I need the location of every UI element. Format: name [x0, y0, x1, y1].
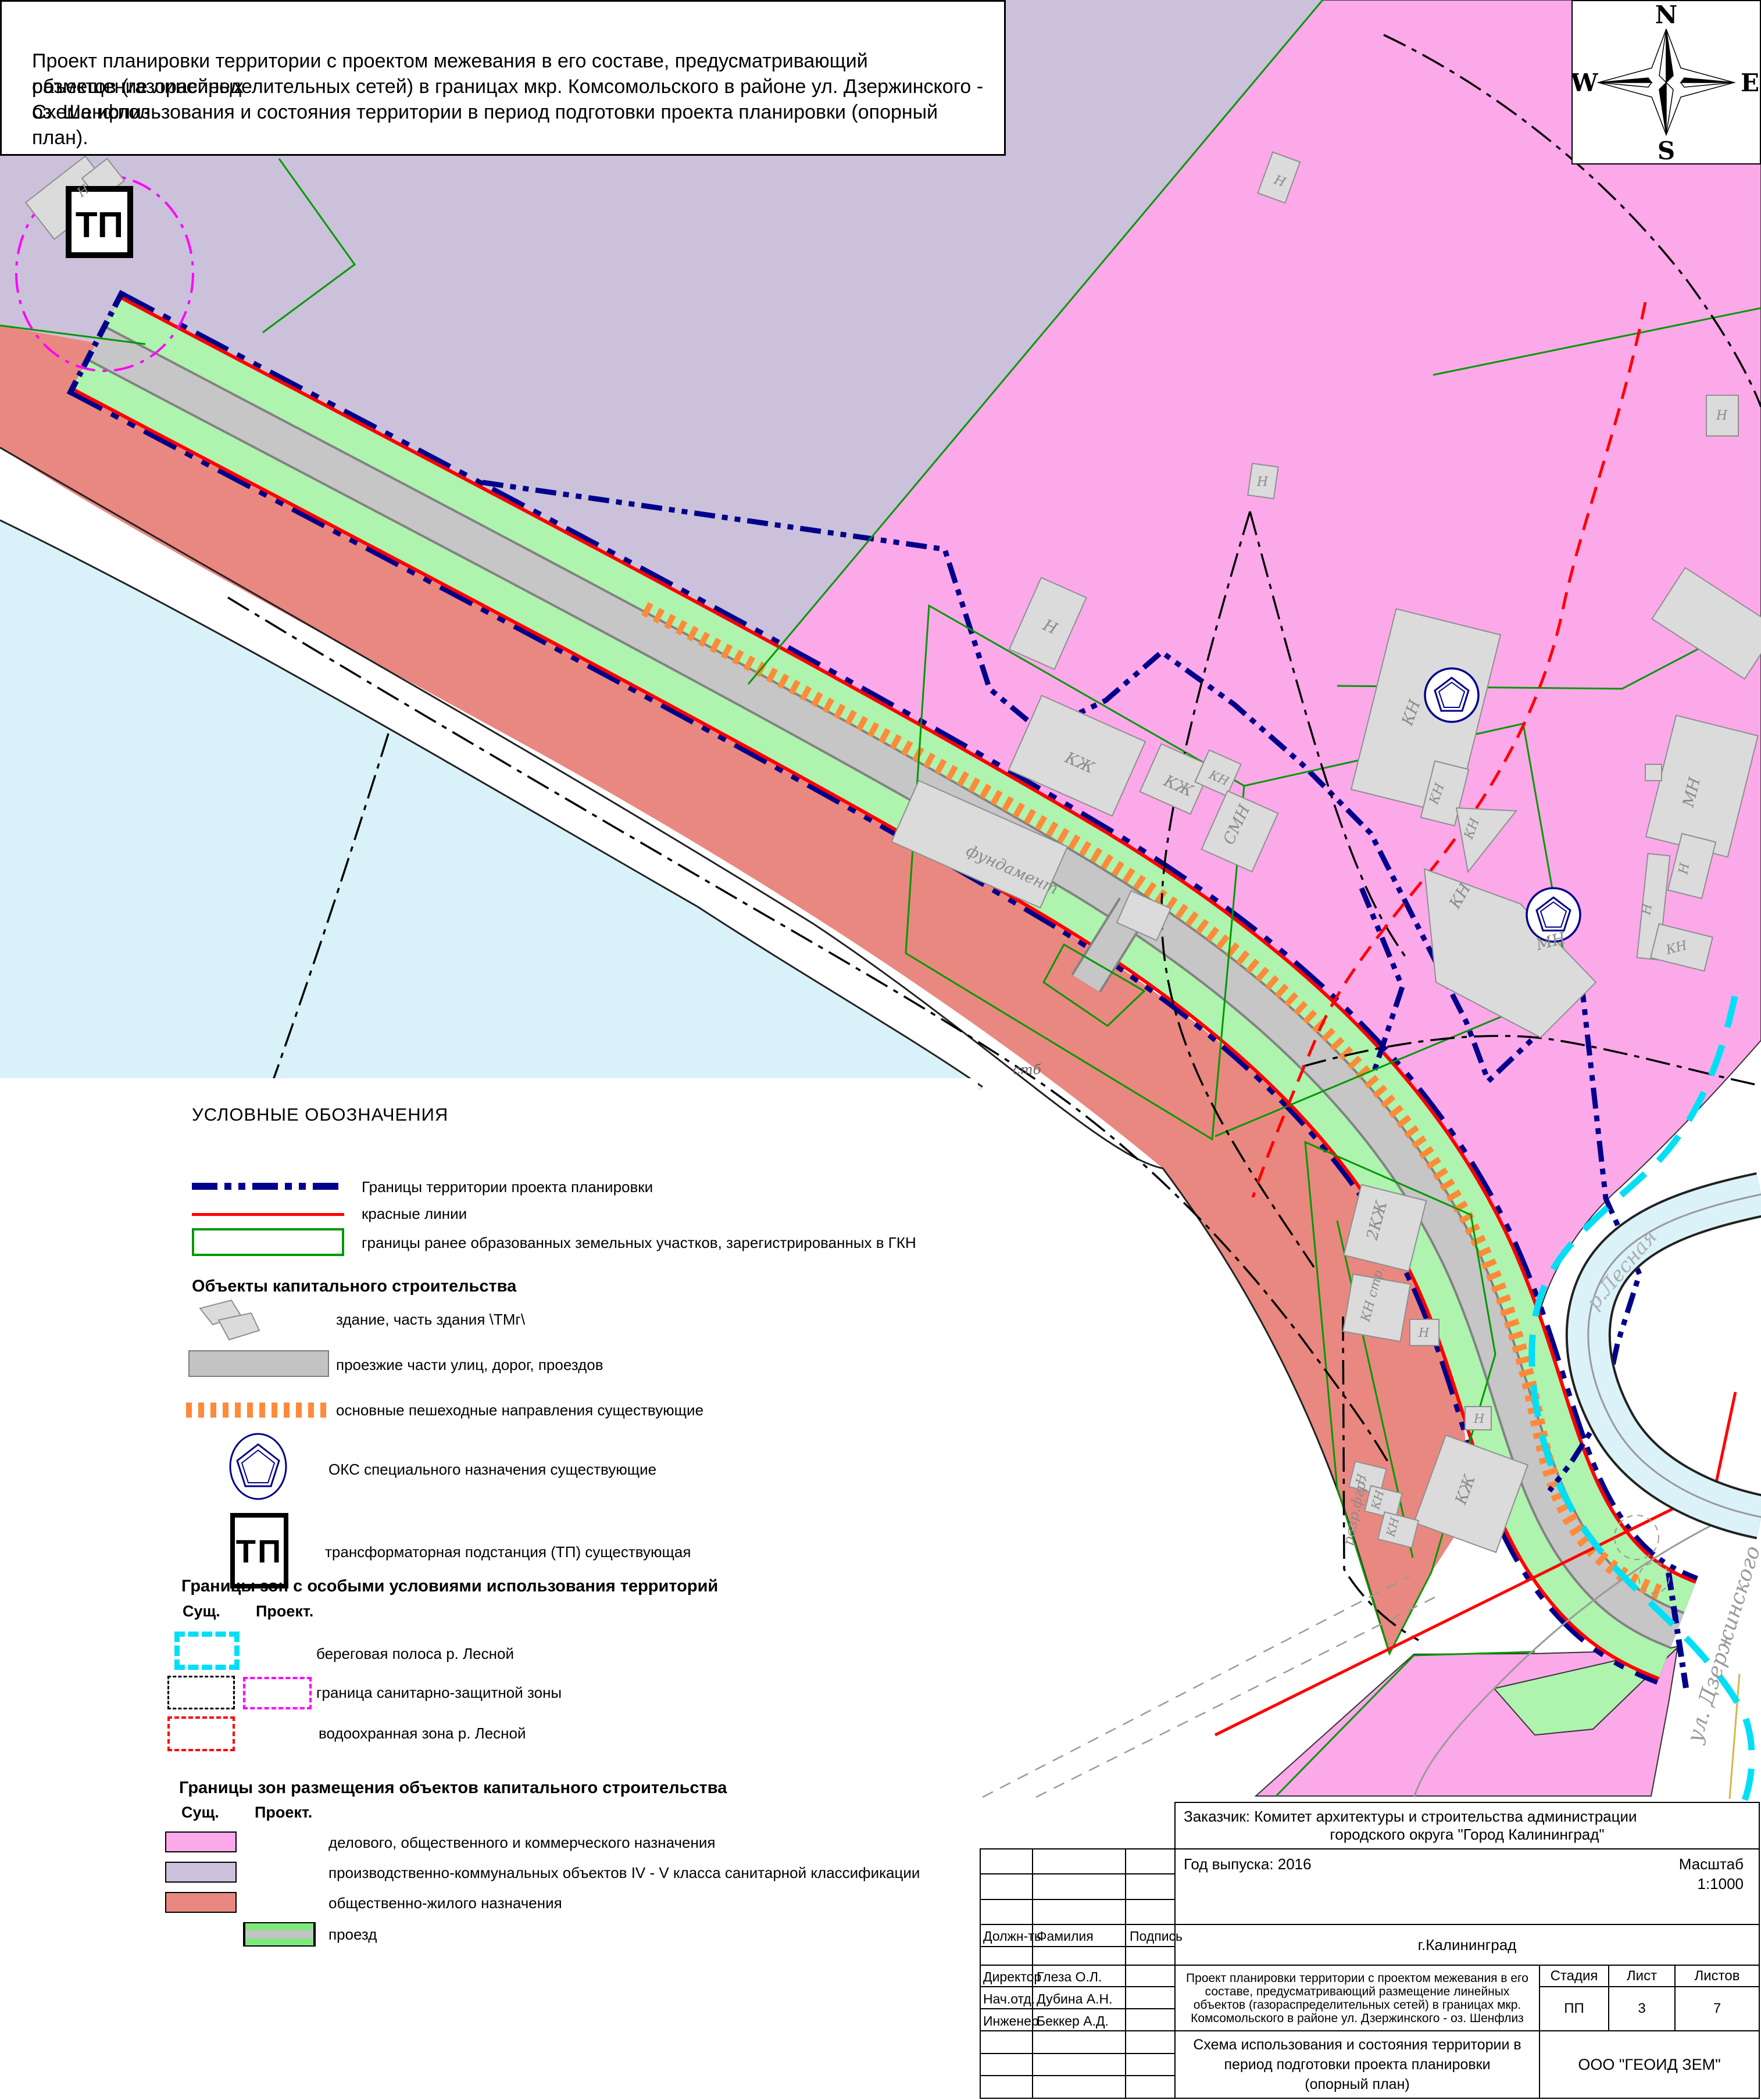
legend-label: проезд — [328, 1926, 377, 1944]
svg-text:Н: Н — [1256, 475, 1269, 489]
compass-box: N S E W — [1571, 0, 1761, 164]
red-line-swatch — [192, 1213, 344, 1216]
person-position: Нач.отд. — [981, 1990, 1037, 2008]
stage-value-cell: ПП — [1539, 1986, 1609, 2031]
col-project: Проект. — [255, 1804, 312, 1822]
legend-label: проезжие части улиц, дорог, проездов — [336, 1356, 603, 1374]
stage-label-cell: Стадия — [1539, 1965, 1609, 1987]
legend-label: основные пешеходные направления существу… — [336, 1401, 703, 1419]
legend-section4-title: Границы зон размещения объектов капиталь… — [179, 1779, 727, 1798]
svg-text:N: N — [1655, 1, 1677, 29]
legend-label: красные линии — [362, 1205, 467, 1223]
city-value: г.Калининград — [1418, 1936, 1517, 1954]
scale-label: Масштаб — [1679, 1855, 1744, 1873]
customer-line1: Заказчик: Комитет архитектуры и строител… — [1184, 1808, 1751, 1826]
stamp-year-cell: Год выпуска: 2016 Масштаб 1:1000 — [1174, 1848, 1760, 1925]
legend-label: граница санитарно-защитной зоны — [316, 1684, 562, 1702]
zone-salmon-swatch — [165, 1892, 237, 1913]
col-surname: Фамилия — [1034, 1927, 1096, 1945]
legend-label: здание, часть здания \ТМг\ — [336, 1311, 525, 1329]
svg-text:S: S — [1658, 137, 1675, 163]
col-existing: Сущ. — [181, 1804, 219, 1822]
svg-text:Н: Н — [1716, 409, 1728, 423]
legend-label: водоохранная зона р. Лесной — [319, 1725, 526, 1743]
boundary-line-swatch — [192, 1183, 344, 1190]
svg-text:W: W — [1573, 69, 1598, 97]
person-name: Глеза О.Л. — [1034, 1968, 1104, 1986]
plan-sheet: ТП фундамент Н КЖ КЖ КН СМН КН КН КН КН … — [0, 0, 1761, 2100]
legend-label: производственно-коммунальных объектов IV… — [328, 1864, 920, 1882]
pedestrian-swatch — [186, 1403, 330, 1418]
legend-label: трансформаторная подстанция (ТП) существ… — [325, 1543, 691, 1561]
stamp-city-cell: г.Калининград — [1174, 1924, 1760, 1966]
sheet-label-cell: Лист — [1608, 1965, 1676, 1987]
legend-section3-title: Границы зон с особыми условиями использо… — [181, 1577, 718, 1596]
sheets-value-cell: 7 — [1674, 1986, 1760, 2031]
sheets-label-cell: Листов — [1674, 1965, 1760, 1987]
legend-label: ОКС специального назначения существующие — [328, 1461, 656, 1479]
tp-symbol-map: ТП — [69, 189, 130, 255]
person-position: Инженер — [981, 2012, 1041, 2030]
svg-text:стб: стб — [1013, 1062, 1042, 1078]
person-name: Беккер А.Д. — [1034, 2012, 1111, 2030]
col-sign: Подпись — [1127, 1927, 1185, 1945]
col-project: Проект. — [256, 1602, 313, 1620]
person-name: Дубина А.Н. — [1034, 1990, 1115, 2008]
tp-icon-label: ТП — [236, 1532, 283, 1570]
col-existing: Сущ. — [183, 1602, 220, 1620]
stamp-company: ООО "ГЕОИД ЗЕМ" — [1539, 2030, 1760, 2099]
sanitary-project-swatch — [243, 1677, 312, 1709]
svg-text:ТП: ТП — [76, 205, 123, 245]
sheet-title-line3: Схема использования и состояния территор… — [32, 99, 987, 151]
building-icon — [195, 1298, 271, 1344]
legend-section2-title: Объекты капитального строительства — [192, 1277, 516, 1296]
water-protect-swatch — [167, 1716, 235, 1751]
scale-value: 1:1000 — [1697, 1875, 1744, 1893]
svg-text:Н: Н — [1418, 1326, 1430, 1340]
oks-icon — [228, 1432, 288, 1501]
legend-label: береговая полоса р. Лесной — [316, 1645, 514, 1663]
sanitary-exist-swatch — [167, 1676, 235, 1709]
stamp-project-title: Проект планировки территории с проектом … — [1174, 1965, 1540, 2031]
compass-rose-icon: N S E W — [1573, 1, 1760, 163]
legend-title: УСЛОВНЫЕ ОБОЗНАЧЕНИЯ — [192, 1104, 448, 1125]
year-value: Год выпуска: 2016 — [1184, 1855, 1312, 1873]
zone-purple-swatch — [165, 1862, 237, 1883]
customer-line2: городского округа "Город Калининград" — [1184, 1826, 1751, 1844]
legend-label: Границы территории проекта планировки — [362, 1178, 653, 1196]
legend-label: общественно-жилого назначения — [328, 1894, 562, 1912]
legend-label: делового, общественного и коммерческого … — [328, 1834, 715, 1852]
legend-label: границы ранее образованных земельных уча… — [362, 1234, 916, 1252]
parcel-swatch — [192, 1228, 344, 1256]
legend-panel: УСЛОВНЫЕ ОБОЗНАЧЕНИЯ Границы территории … — [0, 1078, 978, 2100]
coastal-swatch — [174, 1632, 240, 1670]
svg-text:E: E — [1741, 69, 1759, 97]
zone-pink-swatch — [165, 1831, 237, 1852]
svg-text:Н: Н — [1473, 1412, 1485, 1426]
sheet-value-cell: 3 — [1608, 1986, 1676, 2031]
stamp-customer-cell: Заказчик: Комитет архитектуры и строител… — [1174, 1802, 1760, 1849]
road-swatch — [188, 1350, 329, 1377]
sheet-title-box: Проект планировки территории с проектом … — [0, 0, 1006, 156]
proezd-swatch — [244, 1923, 315, 1945]
stamp-scheme-title: Схема использования и состояния территор… — [1174, 2030, 1540, 2099]
